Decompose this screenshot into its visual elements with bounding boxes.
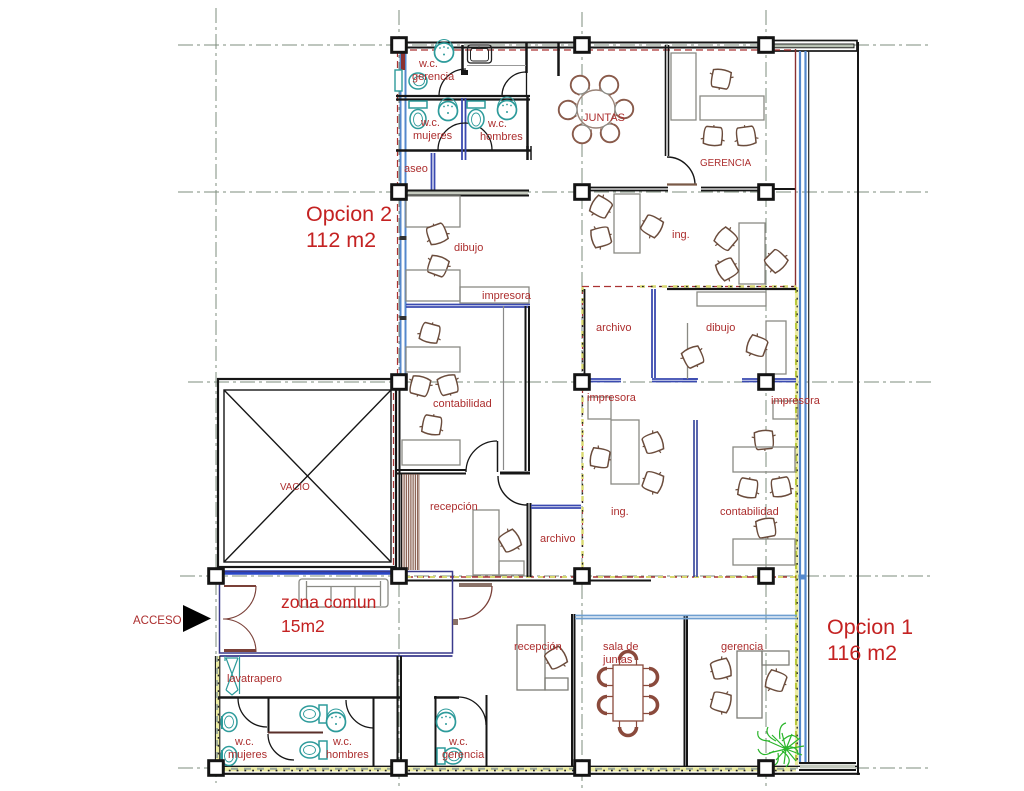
svg-text:archivo: archivo [540, 533, 575, 545]
svg-text:w.c.: w.c. [418, 58, 438, 70]
svg-text:Opcion 2: Opcion 2 [306, 202, 392, 226]
svg-text:gerencia: gerencia [412, 71, 455, 83]
svg-text:dibujo: dibujo [706, 322, 735, 334]
svg-text:contabilidad: contabilidad [720, 506, 779, 518]
svg-text:ing.: ing. [672, 229, 690, 241]
svg-text:w.c.: w.c. [234, 736, 254, 748]
svg-text:w.c.: w.c. [332, 736, 352, 748]
svg-text:recepción: recepción [430, 501, 478, 513]
svg-text:impresora: impresora [482, 290, 532, 302]
svg-text:VACIO: VACIO [280, 482, 310, 493]
svg-text:mujeres: mujeres [228, 749, 268, 761]
svg-text:sala de: sala de [603, 641, 638, 653]
svg-text:w.c.: w.c. [448, 736, 468, 748]
svg-text:aseo: aseo [404, 163, 428, 175]
svg-text:ACCESO: ACCESO [133, 615, 182, 627]
svg-text:juntas: juntas [602, 654, 633, 666]
svg-text:dibujo: dibujo [454, 242, 483, 254]
svg-text:112 m2: 112 m2 [306, 228, 376, 252]
svg-text:zona comun: zona comun [281, 592, 376, 612]
svg-text:gerencia: gerencia [721, 641, 764, 653]
svg-text:15m2: 15m2 [281, 616, 325, 636]
svg-text:gerencia: gerencia [442, 749, 485, 761]
svg-text:lavatrapero: lavatrapero [227, 673, 282, 685]
svg-text:impresora: impresora [771, 395, 821, 407]
svg-text:impresora: impresora [587, 392, 637, 404]
svg-text:contabilidad: contabilidad [433, 398, 492, 410]
svg-text:JUNTAS: JUNTAS [583, 112, 625, 124]
svg-text:recepción: recepción [514, 641, 562, 653]
svg-text:w.c.: w.c. [420, 117, 440, 129]
svg-text:hombres: hombres [480, 131, 523, 143]
svg-text:archivo: archivo [596, 322, 631, 334]
svg-text:ing.: ing. [611, 506, 629, 518]
svg-text:mujeres: mujeres [413, 130, 453, 142]
svg-text:116 m2: 116 m2 [827, 641, 897, 665]
svg-text:w.c.: w.c. [487, 118, 507, 130]
svg-text:hombres: hombres [326, 749, 369, 761]
svg-text:GERENCIA: GERENCIA [700, 158, 752, 169]
svg-text:Opcion 1: Opcion 1 [827, 615, 913, 639]
